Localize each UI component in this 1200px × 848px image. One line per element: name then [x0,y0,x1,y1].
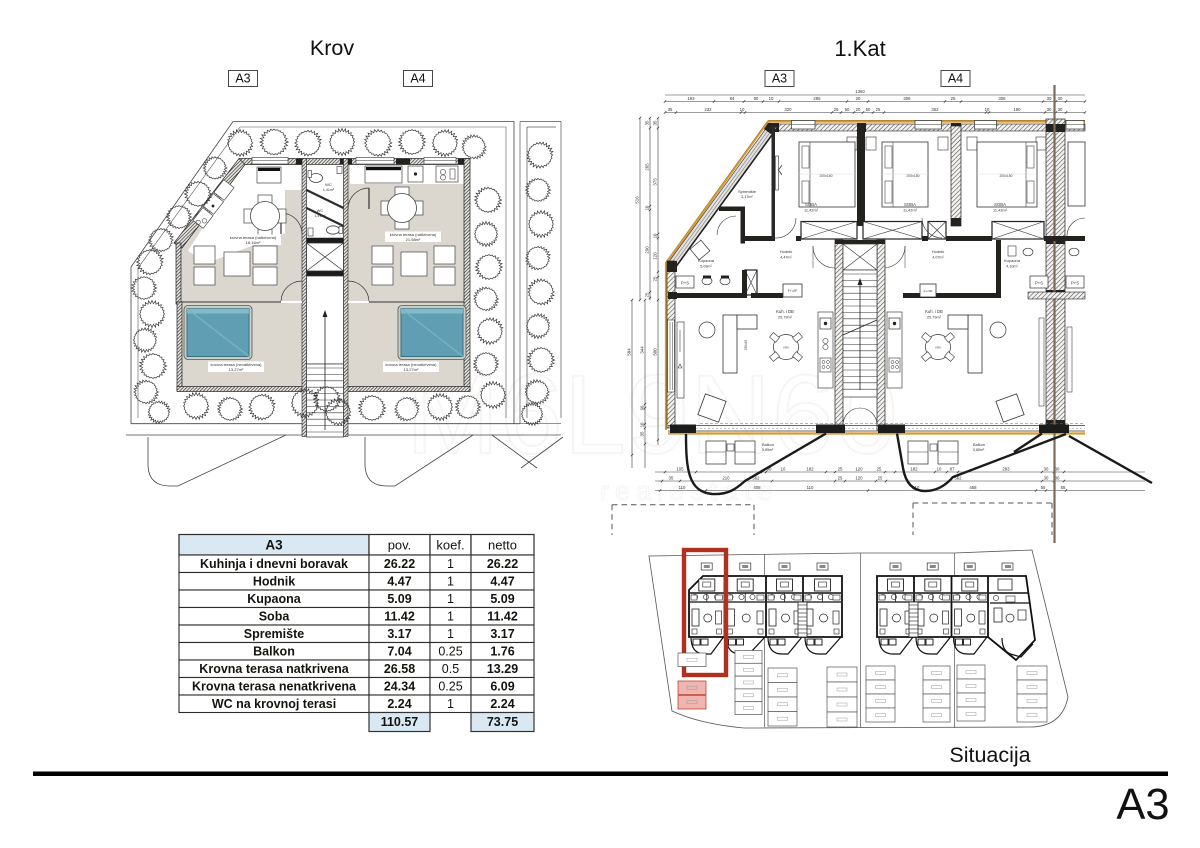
svg-text:A3: A3 [1116,781,1169,829]
svg-text:Spremište: Spremište [738,189,757,194]
svg-text:1: 1 [447,592,454,606]
svg-text:232: 232 [704,107,712,112]
svg-text:1360: 1360 [855,89,865,94]
svg-text:Krovna terasa nenatkrivena: Krovna terasa nenatkrivena [192,680,357,694]
svg-text:96: 96 [640,405,645,410]
svg-text:10: 10 [937,467,942,472]
svg-text:306: 306 [998,96,1006,101]
svg-text:13.29: 13.29 [487,662,518,676]
svg-text:320: 320 [784,107,792,112]
svg-text:1,41m²: 1,41m² [314,214,326,218]
svg-text:35: 35 [640,431,645,436]
svg-text:30: 30 [1058,107,1063,112]
svg-text:30: 30 [1044,476,1049,481]
svg-text:1: 1 [447,697,454,711]
svg-text:11.42: 11.42 [384,610,415,624]
svg-text:25: 25 [653,276,658,281]
svg-text:25,79m²: 25,79m² [778,316,793,320]
svg-text:0.25: 0.25 [438,680,462,694]
svg-text:P+S: P+S [1035,281,1043,286]
svg-text:500: 500 [653,348,658,356]
svg-text:Kupaona: Kupaona [1004,258,1021,263]
svg-text:84: 84 [730,96,735,101]
svg-text:458: 458 [969,485,977,490]
svg-text:pov.: pov. [388,538,412,553]
svg-text:Kuh. i DB: Kuh. i DB [776,309,794,314]
svg-text:55: 55 [1041,485,1046,490]
svg-text:73.75: 73.75 [487,715,518,729]
svg-text:26.22: 26.22 [384,557,415,571]
svg-text:87: 87 [950,467,955,472]
svg-text:P+S: P+S [681,281,689,286]
svg-text:3.17: 3.17 [387,627,411,641]
svg-text:10: 10 [781,467,786,472]
svg-text:110: 110 [807,485,814,490]
svg-text:A3: A3 [772,72,787,86]
svg-text:1: 1 [447,610,454,624]
svg-text:120: 120 [855,467,863,472]
svg-text:20: 20 [856,107,861,112]
svg-text:306: 306 [903,96,911,101]
svg-text:24.34: 24.34 [384,680,415,694]
svg-text:11,42m²: 11,42m² [903,208,918,213]
svg-text:120: 120 [855,476,863,481]
svg-text:210: 210 [722,476,730,481]
svg-text:200x160: 200x160 [819,174,832,178]
svg-text:516: 516 [635,196,640,204]
svg-text:584: 584 [627,348,632,356]
svg-text:11.42: 11.42 [487,610,518,624]
svg-text:4.47: 4.47 [387,575,411,589]
svg-text:A4: A4 [410,72,425,86]
svg-text:18,16m²: 18,16m² [246,240,261,245]
svg-text:F+=0F: F+=0F [924,289,933,293]
svg-text:55: 55 [1061,485,1066,490]
svg-text:Hodnik: Hodnik [932,249,944,254]
svg-text:Balkon: Balkon [762,442,774,447]
svg-text:35: 35 [669,476,674,481]
svg-text:35: 35 [668,107,673,112]
svg-text:20: 20 [856,96,861,101]
svg-text:2.24: 2.24 [387,697,411,711]
svg-text:50: 50 [866,107,871,112]
svg-text:105: 105 [676,467,684,472]
svg-text:A3: A3 [265,538,283,553]
svg-text:10: 10 [640,422,645,427]
svg-text:25,79m²: 25,79m² [927,316,942,320]
svg-text:13,27m²: 13,27m² [404,367,419,372]
svg-text:H90: H90 [783,346,789,350]
svg-text:6.09: 6.09 [490,680,514,694]
svg-text:Situacija: Situacija [949,743,1030,767]
svg-text:35: 35 [645,120,650,125]
svg-text:A3: A3 [235,72,250,86]
svg-text:4,47m²: 4,47m² [780,256,792,260]
svg-text:P+S: P+S [1071,281,1079,286]
svg-text:10: 10 [985,107,990,112]
svg-text:Spremište: Spremište [244,627,304,641]
svg-text:295: 295 [813,96,821,101]
svg-text:Krovna terasa natkrivena: Krovna terasa natkrivena [199,662,349,676]
svg-text:koef.: koef. [436,538,464,553]
svg-text:265: 265 [645,163,650,171]
svg-text:193: 193 [687,96,695,101]
svg-text:SOBA: SOBA [805,202,817,207]
svg-text:230x95: 230x95 [744,340,748,351]
svg-text:30: 30 [1058,96,1063,101]
svg-text:35: 35 [653,120,658,125]
svg-text:netto: netto [488,538,517,553]
svg-text:200x180: 200x180 [906,174,919,178]
svg-text:13,27m²: 13,27m² [229,367,244,372]
svg-text:Krov: Krov [310,36,354,60]
svg-text:283: 283 [1002,467,1010,472]
svg-text:182: 182 [806,467,814,472]
svg-text:0.25: 0.25 [438,645,462,659]
svg-text:26.22: 26.22 [487,557,518,571]
svg-text:10: 10 [653,233,658,238]
svg-text:A4: A4 [948,72,963,86]
svg-text:Kuh. i DB: Kuh. i DB [925,309,943,314]
svg-text:SOBA: SOBA [994,202,1006,207]
svg-text:110: 110 [679,485,686,490]
svg-text:Kupaona: Kupaona [247,592,302,606]
svg-text:5,85m²: 5,85m² [973,448,985,452]
svg-text:30: 30 [1047,107,1052,112]
svg-text:1: 1 [447,627,454,641]
svg-text:30: 30 [1047,96,1052,101]
svg-text:21,58m²: 21,58m² [406,237,421,242]
svg-text:25: 25 [834,107,839,112]
svg-text:5,09m²: 5,09m² [700,265,712,269]
svg-text:10: 10 [769,96,774,101]
svg-text:F+=0F: F+=0F [788,289,797,293]
svg-text:200x180: 200x180 [999,174,1012,178]
svg-text:Hodnik: Hodnik [780,249,792,254]
svg-text:2.24: 2.24 [490,697,514,711]
svg-text:1: 1 [447,575,454,589]
svg-text:Balkon: Balkon [253,645,295,659]
svg-text:290: 290 [645,246,650,254]
svg-text:WC: WC [317,208,324,213]
svg-text:25: 25 [877,467,882,472]
svg-text:3.17: 3.17 [490,627,514,641]
svg-text:5.09: 5.09 [490,592,514,606]
svg-text:25: 25 [876,107,881,112]
svg-text:110.57: 110.57 [381,715,419,729]
svg-text:SOBA: SOBA [904,202,916,207]
svg-text:10: 10 [645,205,650,210]
svg-text:30: 30 [1044,467,1049,472]
svg-text:7.04: 7.04 [387,645,411,659]
svg-text:1.Kat: 1.Kat [834,36,885,61]
svg-text:WC: WC [325,182,332,187]
svg-text:90: 90 [754,96,759,101]
svg-text:1: 1 [447,557,454,571]
svg-text:25: 25 [878,476,883,481]
svg-text:11,42m²: 11,42m² [804,208,819,213]
svg-text:3,17m²: 3,17m² [741,195,753,199]
svg-text:5.09: 5.09 [387,592,411,606]
svg-text:Soba: Soba [259,610,291,624]
svg-text:375: 375 [653,178,658,186]
svg-text:Kuhinja i dnevni boravak: Kuhinja i dnevni boravak [200,557,348,571]
svg-text:11,43m²: 11,43m² [993,208,1008,213]
svg-text:25: 25 [951,96,956,101]
svg-text:4.47: 4.47 [490,575,514,589]
svg-text:Balkon: Balkon [973,442,985,447]
svg-text:5,89m²: 5,89m² [762,448,774,452]
svg-text:4,07m²: 4,07m² [932,256,944,260]
svg-text:50: 50 [845,107,850,112]
svg-text:182: 182 [910,467,918,472]
svg-text:Hodnik: Hodnik [253,575,295,589]
svg-text:1.76: 1.76 [490,645,514,659]
svg-text:190: 190 [1013,107,1021,112]
svg-text:120: 120 [653,252,658,260]
svg-text:0.5: 0.5 [442,662,459,676]
svg-text:4,10m²: 4,10m² [1006,265,1018,269]
svg-text:H90: H90 [935,346,941,350]
svg-text:408: 408 [753,485,761,490]
svg-text:26.58: 26.58 [384,662,415,676]
svg-text:362: 362 [931,107,939,112]
svg-text:10: 10 [740,107,745,112]
svg-text:25: 25 [838,467,843,472]
svg-text:25: 25 [838,476,843,481]
svg-text:344: 344 [640,346,645,354]
svg-text:WC na krovnoj terasi: WC na krovnoj terasi [212,697,336,711]
svg-text:1,41m²: 1,41m² [323,188,335,192]
svg-text:25: 25 [645,292,650,297]
